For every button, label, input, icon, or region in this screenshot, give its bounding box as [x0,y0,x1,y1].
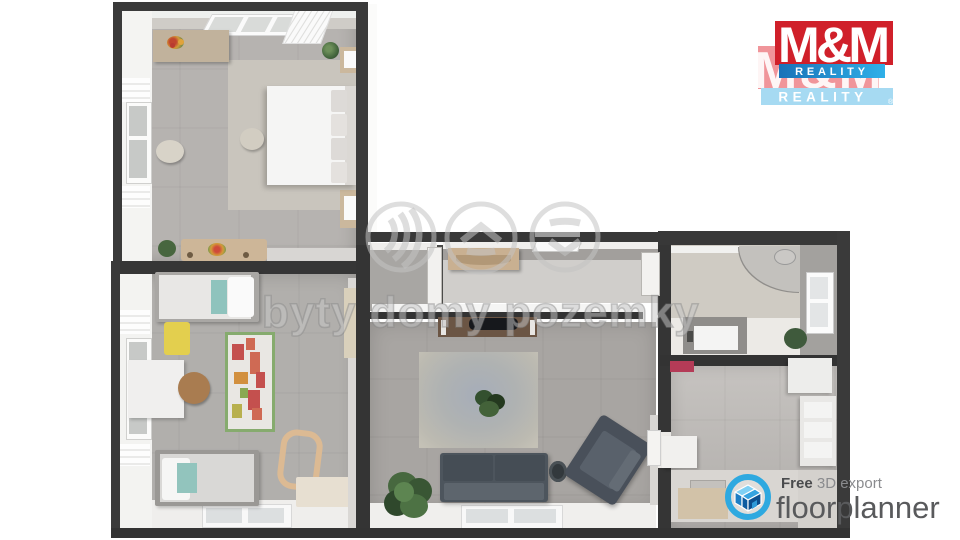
svg-text:®: ® [888,98,894,106]
svg-text:REALITY: REALITY [795,66,869,78]
svg-text:REALITY: REALITY [778,90,867,105]
